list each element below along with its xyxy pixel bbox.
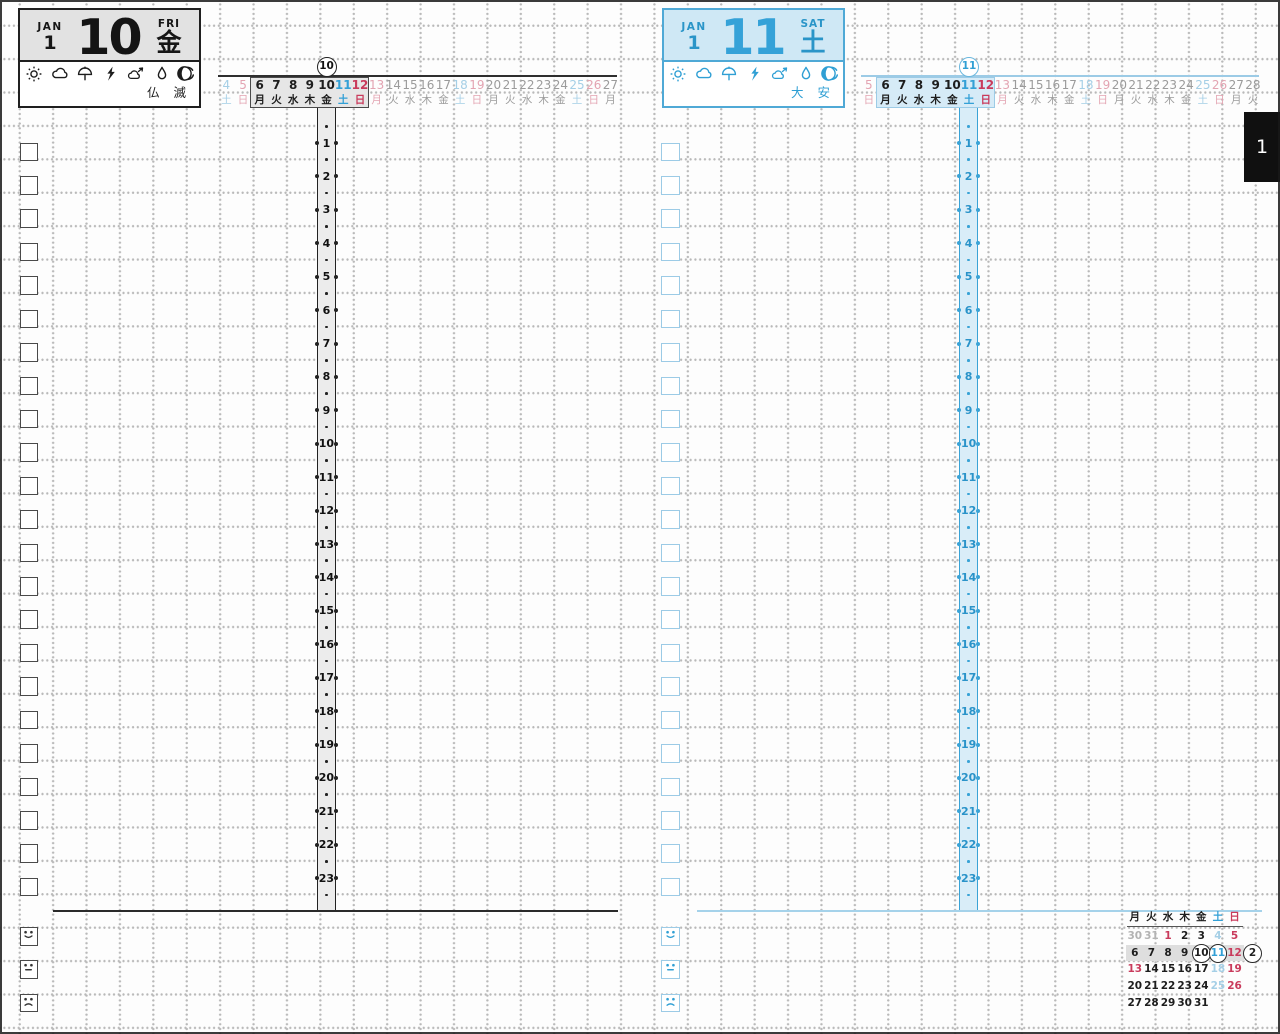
left-hour-tick (334, 676, 338, 680)
mini-calendar-day: 20 (1127, 978, 1144, 995)
left-timeline-column: 1234567891011121314151617181920212223 (317, 108, 336, 911)
wind-cloud-icon (771, 65, 789, 83)
left-mood-happy-checkbox[interactable] (20, 927, 39, 946)
right-hour-label: 2 (960, 170, 977, 183)
left-hour-label: 15 (318, 604, 335, 617)
right-hour-tick (976, 609, 980, 613)
mini-calendar-day: 13 (1127, 961, 1144, 978)
left-strip-date: 14 (385, 78, 402, 93)
right-strip-weekday: 火 (1245, 93, 1262, 108)
right-hour-label: 15 (960, 604, 977, 617)
right-hour-tick (976, 241, 980, 245)
right-half-hour-dot (967, 192, 970, 195)
right-half-hour-dot (967, 526, 970, 529)
left-strip-weekday: 水 (402, 93, 419, 108)
right-half-hour-dot (967, 392, 970, 395)
right-task-checkbox[interactable] (661, 243, 680, 262)
raindrop-icon (153, 65, 171, 83)
left-strip-date: 24 (552, 78, 569, 93)
right-strip-weekday: 水 (1144, 93, 1161, 108)
left-hour-label: 12 (318, 504, 335, 517)
right-hour-tick (976, 208, 980, 212)
left-strip-date: 4 (218, 78, 235, 93)
right-strip-weekday: 水 (1028, 93, 1045, 108)
right-strip-weekday: 土 (1078, 93, 1095, 108)
left-task-checkbox[interactable] (20, 377, 39, 396)
left-strip-date: 26 (585, 78, 602, 93)
right-hour-tick (976, 743, 980, 747)
right-strip-date: 24 (1178, 78, 1195, 93)
left-strip-date: 9 (302, 78, 319, 93)
mini-calendar-weekday-header: 金 (1193, 910, 1210, 925)
left-half-hour-dot (325, 493, 328, 496)
left-task-checkbox[interactable] (20, 844, 39, 863)
left-hour-label: 3 (318, 203, 335, 216)
left-strip-weekday: 金 (435, 93, 452, 108)
left-strip-date: 25 (569, 78, 586, 93)
left-strip-date: 15 (402, 78, 419, 93)
right-half-hour-dot (967, 626, 970, 629)
right-strip-date: 9 (927, 78, 944, 93)
left-hour-label: 20 (318, 771, 335, 784)
right-half-hour-dot (967, 225, 970, 228)
left-strip-weekday: 土 (335, 93, 352, 108)
right-month-number: 1 (687, 34, 700, 52)
lightning-icon (102, 65, 120, 83)
left-strip-date: 10 (318, 78, 335, 93)
left-hour-tick (334, 542, 338, 546)
right-hour-label: 20 (960, 771, 977, 784)
right-strip-date: 17 (1061, 78, 1078, 93)
right-task-checkbox[interactable] (661, 176, 680, 195)
left-strip-weekday: 日 (352, 93, 369, 108)
left-task-checkbox[interactable] (20, 143, 39, 162)
month-tab-label: 1 (1256, 136, 1268, 158)
left-strip-date: 5 (235, 78, 252, 93)
left-hour-label: 23 (318, 872, 335, 885)
left-strip-date: 16 (418, 78, 435, 93)
right-strip-date: 19 (1094, 78, 1111, 93)
mini-calendar-day: 31 (1193, 995, 1210, 1012)
right-strip-circled-day: 11 (959, 57, 979, 77)
right-task-checkbox[interactable] (661, 510, 680, 529)
right-task-checkbox[interactable] (661, 209, 680, 228)
left-strip-date: 17 (435, 78, 452, 93)
right-strip-weekday: 金 (1061, 93, 1078, 108)
right-task-checkbox[interactable] (661, 811, 680, 830)
right-hour-label: 6 (960, 304, 977, 317)
right-strip-weekday: 月 (1228, 93, 1245, 108)
right-strip-date: 18 (1078, 78, 1095, 93)
right-task-checkbox[interactable] (661, 377, 680, 396)
right-strip-date: 8 (911, 78, 928, 93)
left-bottom-rule (53, 910, 618, 912)
right-task-checkbox[interactable] (661, 711, 680, 730)
left-strip-date: 6 (251, 78, 268, 93)
right-hour-label: 13 (960, 538, 977, 551)
left-strip-weekday: 土 (218, 93, 235, 108)
left-hour-label: 21 (318, 805, 335, 818)
right-hour-label: 5 (960, 270, 977, 283)
right-hour-label: 10 (960, 437, 977, 450)
left-half-hour-dot (325, 426, 328, 429)
right-half-hour-dot (967, 593, 970, 596)
left-strip-weekday: 金 (552, 93, 569, 108)
left-hour-label: 2 (318, 170, 335, 183)
right-hour-label: 21 (960, 805, 977, 818)
right-strip-date: 26 (1211, 78, 1228, 93)
right-strip-weekday: 金 (944, 93, 961, 108)
left-task-checkbox[interactable] (20, 276, 39, 295)
right-strip-date: 7 (894, 78, 911, 93)
left-day-number: 10 (70, 14, 147, 58)
right-strip-weekday: 火 (894, 93, 911, 108)
mini-calendar-day: 21 (1143, 978, 1160, 995)
right-hour-tick (976, 709, 980, 713)
left-hour-label: 8 (318, 370, 335, 383)
right-hour-tick (976, 342, 980, 346)
left-hour-label: 9 (318, 404, 335, 417)
right-half-hour-dot (967, 727, 970, 730)
right-strip-date: 25 (1195, 78, 1212, 93)
left-hour-label: 11 (318, 471, 335, 484)
left-half-hour-dot (325, 593, 328, 596)
right-half-hour-dot (967, 860, 970, 863)
right-rokuyo-label: 大 安 (791, 82, 835, 101)
right-task-checkbox[interactable] (661, 276, 680, 295)
right-half-hour-dot (967, 660, 970, 663)
right-strip-date: 23 (1161, 78, 1178, 93)
right-day-number: 11 (714, 14, 791, 58)
right-strip-weekday: 土 (961, 93, 978, 108)
right-task-checkbox[interactable] (661, 644, 680, 663)
mini-calendar-weekday-header: 木 (1176, 910, 1193, 925)
left-task-checkbox[interactable] (20, 176, 39, 195)
left-task-checkbox[interactable] (20, 243, 39, 262)
left-half-hour-dot (325, 860, 328, 863)
left-half-hour-dot (325, 660, 328, 663)
mini-calendar-day: 30 (1176, 995, 1193, 1012)
right-task-checkbox[interactable] (661, 878, 680, 897)
left-half-hour-dot (325, 760, 328, 763)
right-hour-tick (976, 809, 980, 813)
left-task-checkbox[interactable] (20, 644, 39, 663)
left-half-hour-dot (325, 693, 328, 696)
left-hour-tick (334, 743, 338, 747)
left-half-hour-dot (325, 793, 328, 796)
left-half-hour-dot (325, 559, 328, 562)
left-task-checkbox[interactable] (20, 544, 39, 563)
neutral-face-icon (20, 959, 37, 980)
left-strip-weekday: 水 (519, 93, 536, 108)
mini-calendar-day: 17 (1193, 961, 1210, 978)
right-timeline-column: 1234567891011121314151617181920212223 (959, 108, 978, 911)
right-task-checkbox[interactable] (661, 577, 680, 596)
right-half-hour-dot (967, 125, 970, 128)
left-strip-date: 8 (285, 78, 302, 93)
right-task-checkbox[interactable] (661, 477, 680, 496)
right-strip-weekday: 金 (1178, 93, 1195, 108)
right-task-checkbox[interactable] (661, 844, 680, 863)
neutral-face-icon (662, 959, 679, 980)
left-hour-tick (334, 442, 338, 446)
right-hour-label: 11 (960, 471, 977, 484)
left-task-checkbox[interactable] (20, 577, 39, 596)
left-hour-label: 19 (318, 738, 335, 751)
right-task-checkbox[interactable] (661, 143, 680, 162)
left-strip-date: 7 (268, 78, 285, 93)
right-half-hour-dot (967, 793, 970, 796)
left-hour-label: 13 (318, 538, 335, 551)
left-hour-tick (334, 275, 338, 279)
right-hour-tick (976, 509, 980, 513)
left-strip-weekday: 日 (585, 93, 602, 108)
left-strip-date: 27 (602, 78, 619, 93)
left-day-header: JAN 1 10 FRI 金 仏 滅 (18, 8, 201, 108)
left-task-checkbox[interactable] (20, 343, 39, 362)
left-strip-date: 20 (485, 78, 502, 93)
right-strip-weekday: 土 (1195, 93, 1212, 108)
right-hour-label: 14 (960, 571, 977, 584)
right-hour-tick (976, 876, 980, 880)
left-task-checkbox[interactable] (20, 477, 39, 496)
right-strip-date: 22 (1144, 78, 1161, 93)
left-half-hour-dot (325, 192, 328, 195)
left-half-hour-dot (325, 158, 328, 161)
right-half-hour-dot (967, 559, 970, 562)
left-hour-tick (334, 709, 338, 713)
right-day-header: JAN 1 11 SAT 土 大 安 (662, 8, 845, 108)
mini-calendar-day: 19 (1226, 961, 1243, 978)
mini-calendar-day: 23 (1176, 978, 1193, 995)
page-edge (0, 0, 1280, 1034)
left-task-checkbox[interactable] (20, 878, 39, 897)
left-task-checkbox[interactable] (20, 778, 39, 797)
left-half-hour-dot (325, 225, 328, 228)
mini-calendar-weekday-header: 日 (1226, 910, 1243, 925)
left-task-checkbox[interactable] (20, 310, 39, 329)
right-weather-icons (669, 65, 840, 83)
right-hour-label: 17 (960, 671, 977, 684)
mini-calendar-day: 10 (1193, 945, 1210, 962)
left-month-number: 1 (43, 34, 56, 52)
right-half-hour-dot (967, 827, 970, 830)
right-hour-tick (976, 275, 980, 279)
left-hour-tick (334, 408, 338, 412)
left-strip-weekday: 火 (268, 93, 285, 108)
left-weather-icons (25, 65, 196, 83)
lightning-icon (746, 65, 764, 83)
left-half-hour-dot (325, 626, 328, 629)
left-strip-weekday: 木 (302, 93, 319, 108)
right-strip-weekday: 火 (1128, 93, 1145, 108)
left-strip-date: 19 (469, 78, 486, 93)
right-strip-date: 10 (944, 78, 961, 93)
left-hour-label: 14 (318, 571, 335, 584)
left-task-checkbox[interactable] (20, 744, 39, 763)
right-task-checkbox[interactable] (661, 544, 680, 563)
left-hour-tick (315, 743, 319, 747)
left-task-checkbox[interactable] (20, 811, 39, 830)
right-task-checkbox[interactable] (661, 410, 680, 429)
left-hour-tick (334, 475, 338, 479)
right-date-block: JAN 1 11 SAT 土 (664, 10, 843, 62)
mini-calendar-day: 14 (1143, 961, 1160, 978)
left-strip-weekday: 水 (285, 93, 302, 108)
right-hour-tick (976, 174, 980, 178)
right-half-hour-dot (967, 359, 970, 362)
right-task-checkbox[interactable] (661, 443, 680, 462)
right-strip-weekday: 日 (1094, 93, 1111, 108)
right-hour-label: 7 (960, 337, 977, 350)
right-strip-date: 14 (1011, 78, 1028, 93)
mini-calendar-day: 30 (1127, 928, 1144, 945)
left-hour-tick (315, 509, 319, 513)
left-hour-label: 4 (318, 237, 335, 250)
mini-calendar-day: 29 (1160, 995, 1177, 1012)
right-half-hour-dot (967, 894, 970, 897)
umbrella-icon (720, 65, 738, 83)
right-half-hour-dot (967, 493, 970, 496)
mini-calendar-day: 22 (1160, 978, 1177, 995)
left-hour-tick (315, 843, 319, 847)
right-hour-label: 8 (960, 370, 977, 383)
left-task-checkbox[interactable] (20, 443, 39, 462)
right-hour-tick (976, 141, 980, 145)
left-half-hour-dot (325, 259, 328, 262)
right-strip-weekday: 日 (1211, 93, 1228, 108)
left-hour-tick (315, 275, 319, 279)
month-tab-1[interactable]: 1 (1244, 112, 1280, 182)
left-hour-tick (334, 342, 338, 346)
left-strip-weekday: 土 (569, 93, 586, 108)
left-task-checkbox[interactable] (20, 209, 39, 228)
left-strip-circled-day: 10 (317, 57, 337, 77)
mini-calendar-day: 12 (1226, 945, 1243, 962)
left-half-hour-dot (325, 326, 328, 329)
left-strip-weekday: 日 (469, 93, 486, 108)
left-hour-tick (334, 141, 338, 145)
mini-calendar-day: 16 (1176, 961, 1193, 978)
wind-cloud-icon (127, 65, 145, 83)
left-hour-tick (334, 776, 338, 780)
sad-face-icon (662, 993, 679, 1014)
mini-calendar-day: 4 (1210, 928, 1227, 945)
left-strip-date: 13 (368, 78, 385, 93)
mini-calendar-day: 18 (1210, 961, 1227, 978)
mini-calendar-day: 15 (1160, 961, 1177, 978)
left-hour-tick (334, 375, 338, 379)
right-mood-sad-checkbox[interactable] (661, 994, 680, 1013)
mini-calendar-day: 7 (1143, 945, 1160, 962)
right-hour-tick (976, 442, 980, 446)
right-task-checkbox[interactable] (661, 778, 680, 797)
mini-calendar-day: 24 (1193, 978, 1210, 995)
left-hour-tick (334, 241, 338, 245)
mini-calendar-day: 28 (1143, 995, 1160, 1012)
cloud-icon (695, 65, 713, 83)
left-hour-tick (315, 342, 319, 346)
sun-icon (669, 65, 687, 83)
left-task-checkbox[interactable] (20, 711, 39, 730)
left-month-abbr: JAN (37, 21, 62, 33)
left-half-hour-dot (325, 894, 328, 897)
right-strip-weekday: 木 (1044, 93, 1061, 108)
right-hour-label: 1 (960, 137, 977, 150)
right-hour-tick (976, 542, 980, 546)
left-hour-label: 16 (318, 638, 335, 651)
right-task-checkbox[interactable] (661, 677, 680, 696)
next-month-indicator[interactable]: 2 (1243, 944, 1262, 963)
left-hour-tick (334, 509, 338, 513)
right-task-checkbox[interactable] (661, 310, 680, 329)
right-strip-date: 12 (977, 78, 994, 93)
left-hour-tick (334, 642, 338, 646)
left-hour-label: 18 (318, 705, 335, 718)
left-strip-weekday: 木 (418, 93, 435, 108)
right-strip-date: 13 (994, 78, 1011, 93)
cloud-icon (51, 65, 69, 83)
left-hour-label: 22 (318, 838, 335, 851)
right-strip-weekday: 月 (994, 93, 1011, 108)
left-hour-tick (334, 308, 338, 312)
left-rokuyo-label: 仏 滅 (147, 82, 191, 101)
right-hour-label: 16 (960, 638, 977, 651)
right-hour-label: 12 (960, 504, 977, 517)
right-hour-label: 22 (960, 838, 977, 851)
left-hour-label: 17 (318, 671, 335, 684)
right-hour-tick (976, 408, 980, 412)
raindrop-icon (797, 65, 815, 83)
happy-face-icon (662, 926, 679, 947)
right-half-hour-dot (967, 426, 970, 429)
right-strip-weekday: 木 (1161, 93, 1178, 108)
left-hour-tick (334, 809, 338, 813)
right-strip-date: 5 (861, 78, 878, 93)
left-task-checkbox[interactable] (20, 677, 39, 696)
sad-face-icon (20, 993, 37, 1014)
right-mood-happy-checkbox[interactable] (661, 927, 680, 946)
right-hour-tick (976, 843, 980, 847)
right-hour-tick (976, 776, 980, 780)
left-mood-sad-checkbox[interactable] (20, 994, 39, 1013)
right-hour-tick (976, 676, 980, 680)
right-strip-date: 11 (961, 78, 978, 93)
right-half-hour-dot (967, 760, 970, 763)
mini-calendar-day: 6 (1127, 945, 1144, 962)
left-hour-tick (315, 676, 319, 680)
right-mood-neutral-checkbox[interactable] (661, 960, 680, 979)
left-task-checkbox[interactable] (20, 510, 39, 529)
right-hour-label: 9 (960, 404, 977, 417)
right-task-checkbox[interactable] (661, 744, 680, 763)
left-strip-weekday: 火 (502, 93, 519, 108)
left-hour-tick (334, 843, 338, 847)
left-hour-label: 6 (318, 304, 335, 317)
right-hour-label: 19 (960, 738, 977, 751)
right-strip-date: 16 (1044, 78, 1061, 93)
left-half-hour-dot (325, 459, 328, 462)
left-mood-neutral-checkbox[interactable] (20, 960, 39, 979)
mini-calendar-day: 3 (1193, 928, 1210, 945)
right-strip-weekday: 月 (1111, 93, 1128, 108)
right-strip-weekday: 月 (877, 93, 894, 108)
right-task-checkbox[interactable] (661, 343, 680, 362)
left-task-checkbox[interactable] (20, 410, 39, 429)
left-task-checkbox[interactable] (20, 610, 39, 629)
right-hour-tick (976, 475, 980, 479)
right-task-checkbox[interactable] (661, 610, 680, 629)
